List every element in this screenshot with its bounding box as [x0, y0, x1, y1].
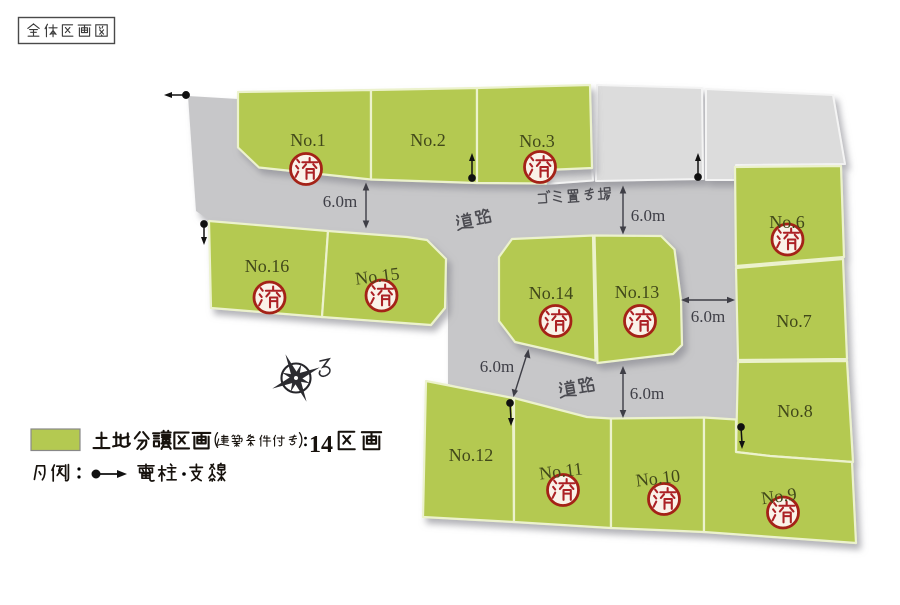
svg-text:No.6: No.6	[769, 212, 805, 232]
svg-text:14: 14	[309, 432, 333, 458]
svg-text:6.0m: 6.0m	[480, 357, 514, 376]
svg-text:6.0m: 6.0m	[631, 206, 665, 225]
svg-text:No.8: No.8	[777, 401, 813, 421]
svg-text:No.3: No.3	[519, 131, 555, 151]
svg-text:6.0m: 6.0m	[630, 384, 664, 403]
svg-text:No.1: No.1	[290, 130, 326, 150]
svg-text:No.16: No.16	[245, 256, 290, 276]
svg-text:No.13: No.13	[615, 282, 660, 302]
svg-text:6.0m: 6.0m	[323, 192, 357, 211]
svg-text:No.12: No.12	[449, 445, 494, 465]
svg-text:6.0m: 6.0m	[691, 307, 725, 326]
svg-text:No.7: No.7	[776, 311, 812, 331]
svg-text:No.14: No.14	[529, 283, 574, 303]
svg-text:No.2: No.2	[410, 130, 446, 150]
